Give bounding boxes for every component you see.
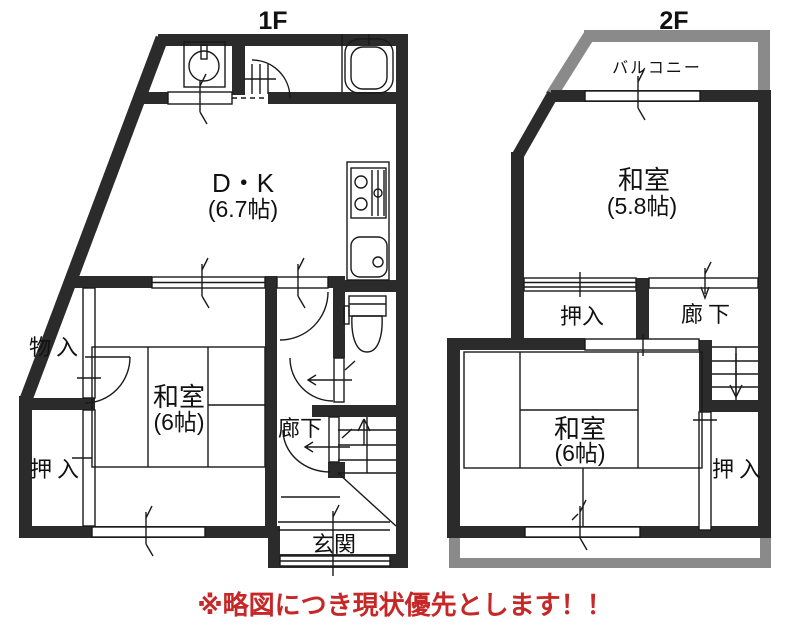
f1-wall-laundry bbox=[232, 34, 245, 95]
f2-rouka-label: 廊下 bbox=[681, 302, 735, 327]
f1-wall-dk-a bbox=[66, 276, 152, 288]
f1-wall-corridor-right bbox=[333, 280, 345, 358]
f1-washitsu-label: 和室 bbox=[153, 382, 205, 412]
f1-rouka-label: 廊下 bbox=[278, 416, 322, 441]
floor2-title: 2F bbox=[659, 7, 688, 35]
f1-wall-wc-top bbox=[345, 280, 396, 292]
f1-wall-dk-b bbox=[265, 276, 277, 288]
floor1-plan: 1F D・K (6.7帖) 和室 (6帖) 物入 押入 廊下 玄関 bbox=[19, 7, 408, 576]
f1-door-arcs bbox=[85, 292, 333, 472]
floorplan-drawing: 1F D・K (6.7帖) 和室 (6帖) 物入 押入 廊下 玄関 bbox=[0, 0, 800, 636]
f1-oshiire-label: 押入 bbox=[30, 457, 84, 482]
f2-washitsu-b-size: (6帖) bbox=[554, 440, 605, 466]
floorplan-page: 1F D・K (6.7帖) 和室 (6帖) 物入 押入 廊下 玄関 bbox=[0, 0, 800, 636]
f1-wall-right bbox=[396, 34, 408, 568]
f2-washitsu-a-size: (5.8帖) bbox=[607, 193, 677, 219]
f1-wall-stair-block bbox=[328, 462, 345, 478]
f1-wall-strip-a bbox=[140, 92, 170, 104]
f2-wall-slant bbox=[517, 94, 553, 157]
f1-wall-wc-bottom bbox=[312, 405, 396, 417]
f1-wall-closet-divider bbox=[22, 398, 95, 410]
f2-washitsu-a-label: 和室 bbox=[618, 165, 670, 195]
f1-genkan-label: 玄関 bbox=[312, 532, 356, 557]
f1-wall-top bbox=[158, 34, 408, 46]
up-arrow-icon bbox=[358, 419, 370, 445]
floor2-plan: 2F バルコニー 和室 (5.8帖) 押入 廊下 和室 (6帖) 押入 bbox=[447, 7, 771, 568]
f1-washitsu-size: (6帖) bbox=[153, 409, 204, 435]
f2-oshiire-upper-label: 押入 bbox=[560, 304, 604, 329]
down-arrow-icon bbox=[730, 353, 742, 397]
f2-balcony-label: バルコニー bbox=[612, 60, 702, 77]
f1-monoire-label: 物入 bbox=[29, 335, 83, 360]
kitchen-counter-icon bbox=[347, 162, 389, 280]
f1-dk-size: (6.7帖) bbox=[208, 196, 278, 222]
f2-wall-left-lower bbox=[447, 338, 460, 538]
f1-dk-label: D・K bbox=[212, 168, 275, 198]
f1-wall-washitsu-right bbox=[265, 288, 277, 526]
disclaimer-note: ※略図につき現状優先とします！！ bbox=[197, 590, 612, 620]
f2-wall-stair-bottom bbox=[705, 400, 758, 412]
f2-wall-left-upper bbox=[511, 152, 524, 350]
f2-wall-mid bbox=[447, 338, 585, 350]
toilet-icon bbox=[344, 296, 386, 352]
f2-oshiire-lower-label: 押入 bbox=[712, 457, 766, 482]
f2-lower-balcony bbox=[449, 538, 771, 568]
washing-machine-icon bbox=[184, 42, 225, 87]
f1-wall-strip-b bbox=[268, 92, 408, 104]
stairs-down-icon bbox=[712, 347, 758, 400]
floor1-title: 1F bbox=[258, 7, 287, 35]
